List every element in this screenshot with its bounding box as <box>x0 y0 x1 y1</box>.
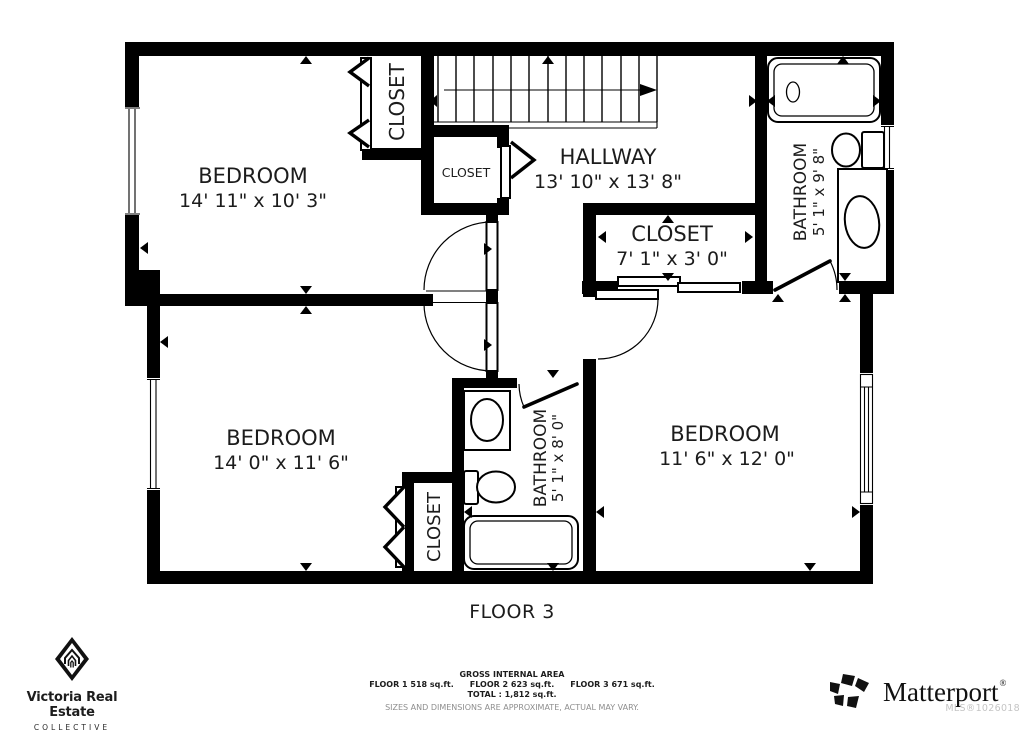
toilet-icon <box>832 132 884 168</box>
sink-icon <box>464 391 510 450</box>
agency-diamond-icon <box>54 636 90 682</box>
floor-areas: FLOOR 1 518 sq.ft. FLOOR 2 623 sq.ft. FL… <box>362 680 662 690</box>
window <box>860 373 873 505</box>
room-dims-bedroom2: 14' 0" x 11' 6" <box>213 452 349 474</box>
stairs <box>430 56 657 128</box>
floor1-area: FLOOR 1 518 sq.ft. <box>369 680 454 690</box>
room-label-closet-hall: CLOSET <box>631 222 713 246</box>
room-label-closet-bedroom2: CLOSET <box>424 491 445 562</box>
bathtub-icon <box>464 516 578 569</box>
room-label-bedroom1: BEDROOM <box>198 164 308 188</box>
door-bathroom-main <box>519 384 577 407</box>
floor3-area: FLOOR 3 671 sq.ft. <box>570 680 655 690</box>
area-title: GROSS INTERNAL AREA <box>362 670 662 680</box>
window <box>125 107 140 215</box>
sink-icon <box>838 169 887 282</box>
room-label-closet-top: CLOSET <box>385 62 409 140</box>
door-bedroom2 <box>424 303 498 372</box>
mls-number: MLS®1026018 <box>860 703 1020 714</box>
room-dims-bedroom3: 11' 6" x 12' 0" <box>659 448 795 470</box>
room-dims-bathroom-ensuite: 5' 1" x 9' 8" <box>810 148 828 236</box>
room-label-bathroom-main: BATHROOM <box>531 409 551 507</box>
floorplan: BEDROOM 14' 11" x 10' 3" HALLWAY 13' 10"… <box>0 0 1024 660</box>
disclaimer: SIZES AND DIMENSIONS ARE APPROXIMATE, AC… <box>362 703 662 713</box>
room-dims-hallway: 13' 10" x 13' 8" <box>534 171 682 193</box>
door-closet-top <box>350 58 371 150</box>
toilet-icon <box>464 471 515 504</box>
room-dims-bathroom-main: 5' 1" x 8' 0" <box>549 414 567 502</box>
stairs-direction-arrow <box>444 84 657 96</box>
room-dims-bedroom1: 14' 11" x 10' 3" <box>179 190 327 212</box>
registered-mark: ® <box>999 678 1006 688</box>
agency-subtitle: COLLECTIVE <box>6 723 138 732</box>
total-area: TOTAL : 1,812 sq.ft. <box>362 690 662 700</box>
agency-name: Victoria Real Estate <box>6 690 138 720</box>
window <box>147 378 160 490</box>
floor2-area: FLOOR 2 623 sq.ft. <box>470 680 555 690</box>
room-label-bedroom3: BEDROOM <box>670 422 780 446</box>
room-label-hallway: HALLWAY <box>560 145 657 169</box>
area-summary: GROSS INTERNAL AREA FLOOR 1 518 sq.ft. F… <box>362 670 662 713</box>
agency-logo: Victoria Real Estate COLLECTIVE <box>6 636 138 732</box>
door-bedroom1 <box>424 222 498 291</box>
bathtub-icon <box>768 58 880 122</box>
door-bedroom3 <box>596 290 658 359</box>
room-dims-closet-hall: 7' 1" x 3' 0" <box>616 248 728 270</box>
floor-title: FLOOR 3 <box>469 601 555 623</box>
room-label-closet-landing: CLOSET <box>442 165 491 180</box>
walls <box>125 42 894 584</box>
room-label-bathroom-ensuite: BATHROOM <box>791 143 811 241</box>
room-label-bedroom2: BEDROOM <box>226 426 336 450</box>
door-closet-bedroom2 <box>385 487 406 567</box>
door-closet-landing <box>501 142 534 198</box>
